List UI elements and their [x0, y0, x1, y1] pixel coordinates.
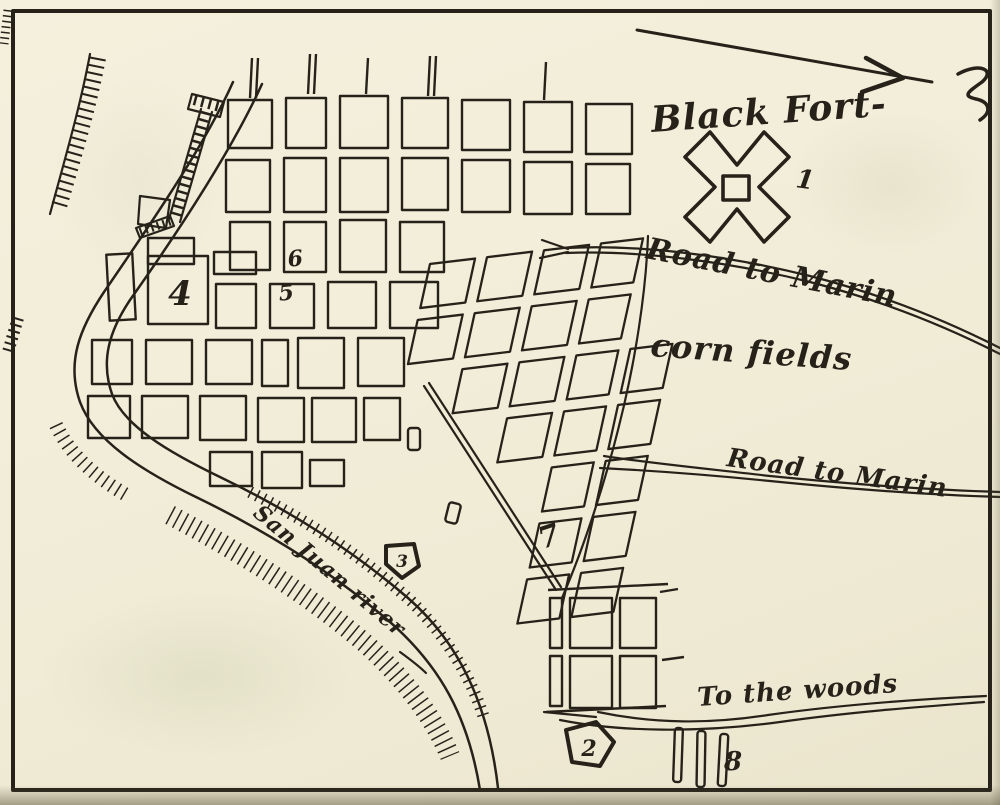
citadel-structure [136, 94, 224, 238]
hill-hatching [4, 10, 98, 352]
corn-fields-label: corn fields [649, 326, 853, 378]
marker-1: 1 [794, 164, 816, 196]
river-label: San Juan river [248, 500, 411, 643]
page-edge-shadow [0, 785, 1000, 805]
earthwork-bars [673, 728, 728, 787]
marker-6: 6 [286, 245, 304, 272]
marker-3: 3 [396, 552, 408, 572]
road-to-marin-lower-label: Road to Marin [724, 443, 950, 504]
scanned-map-page: San Juan river [0, 0, 1000, 805]
road-to-the-woods: To the woods [544, 669, 986, 730]
direction-arrow [637, 30, 932, 92]
black-fort: Black Fort- 1 [649, 83, 888, 242]
road-to-marin-lower: Road to Marin [600, 443, 1000, 504]
marker-4: 4 [168, 274, 192, 314]
san-juan-river: San Juan river [56, 82, 498, 790]
black-fort-label: Black Fort- [649, 83, 888, 141]
marker-2: 2 [580, 736, 596, 762]
to-the-woods-label: To the woods [696, 669, 899, 713]
marker-5: 5 [277, 279, 295, 306]
road-to-marin-upper-label: Road to Marin [642, 231, 900, 314]
hand-drawn-map: San Juan river [0, 0, 1000, 805]
corner-squiggle [958, 68, 988, 120]
fort-star-outline [685, 132, 789, 242]
page-edge-shadow [990, 0, 1000, 805]
fort-inner-square [723, 176, 749, 200]
